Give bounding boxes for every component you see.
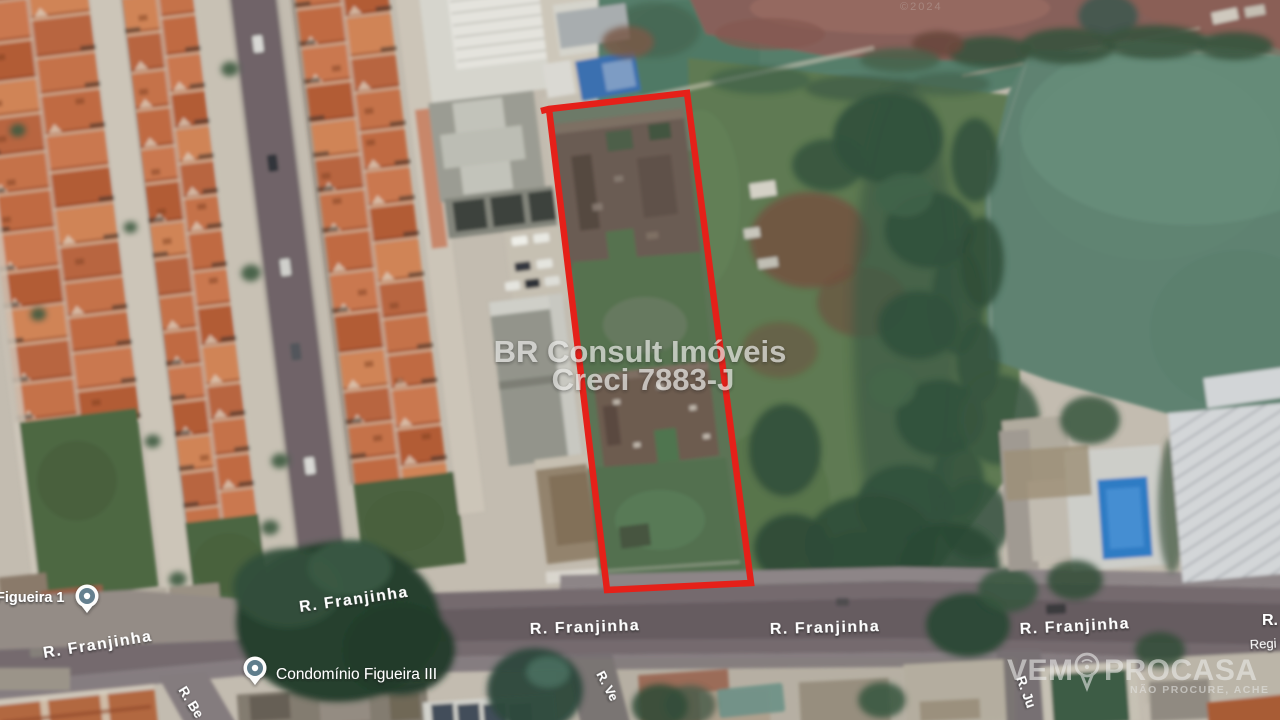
svg-text:Figueira 1: Figueira 1 bbox=[0, 590, 65, 606]
svg-text:Regi: Regi bbox=[1249, 636, 1277, 652]
svg-text:Creci 7883-J: Creci 7883-J bbox=[552, 362, 735, 397]
svg-text:Condomínio Figueira III: Condomínio Figueira III bbox=[276, 666, 437, 683]
svg-text:R.: R. bbox=[1262, 612, 1278, 629]
svg-text:©2024: ©2024 bbox=[900, 1, 943, 13]
svg-text:R. Franjinha: R. Franjinha bbox=[770, 618, 881, 638]
svg-text:VEM: VEM bbox=[1007, 654, 1074, 687]
svg-text:PROCASA: PROCASA bbox=[1104, 654, 1258, 687]
svg-text:NÃO PROCURE, ACHE: NÃO PROCURE, ACHE bbox=[1130, 683, 1269, 696]
